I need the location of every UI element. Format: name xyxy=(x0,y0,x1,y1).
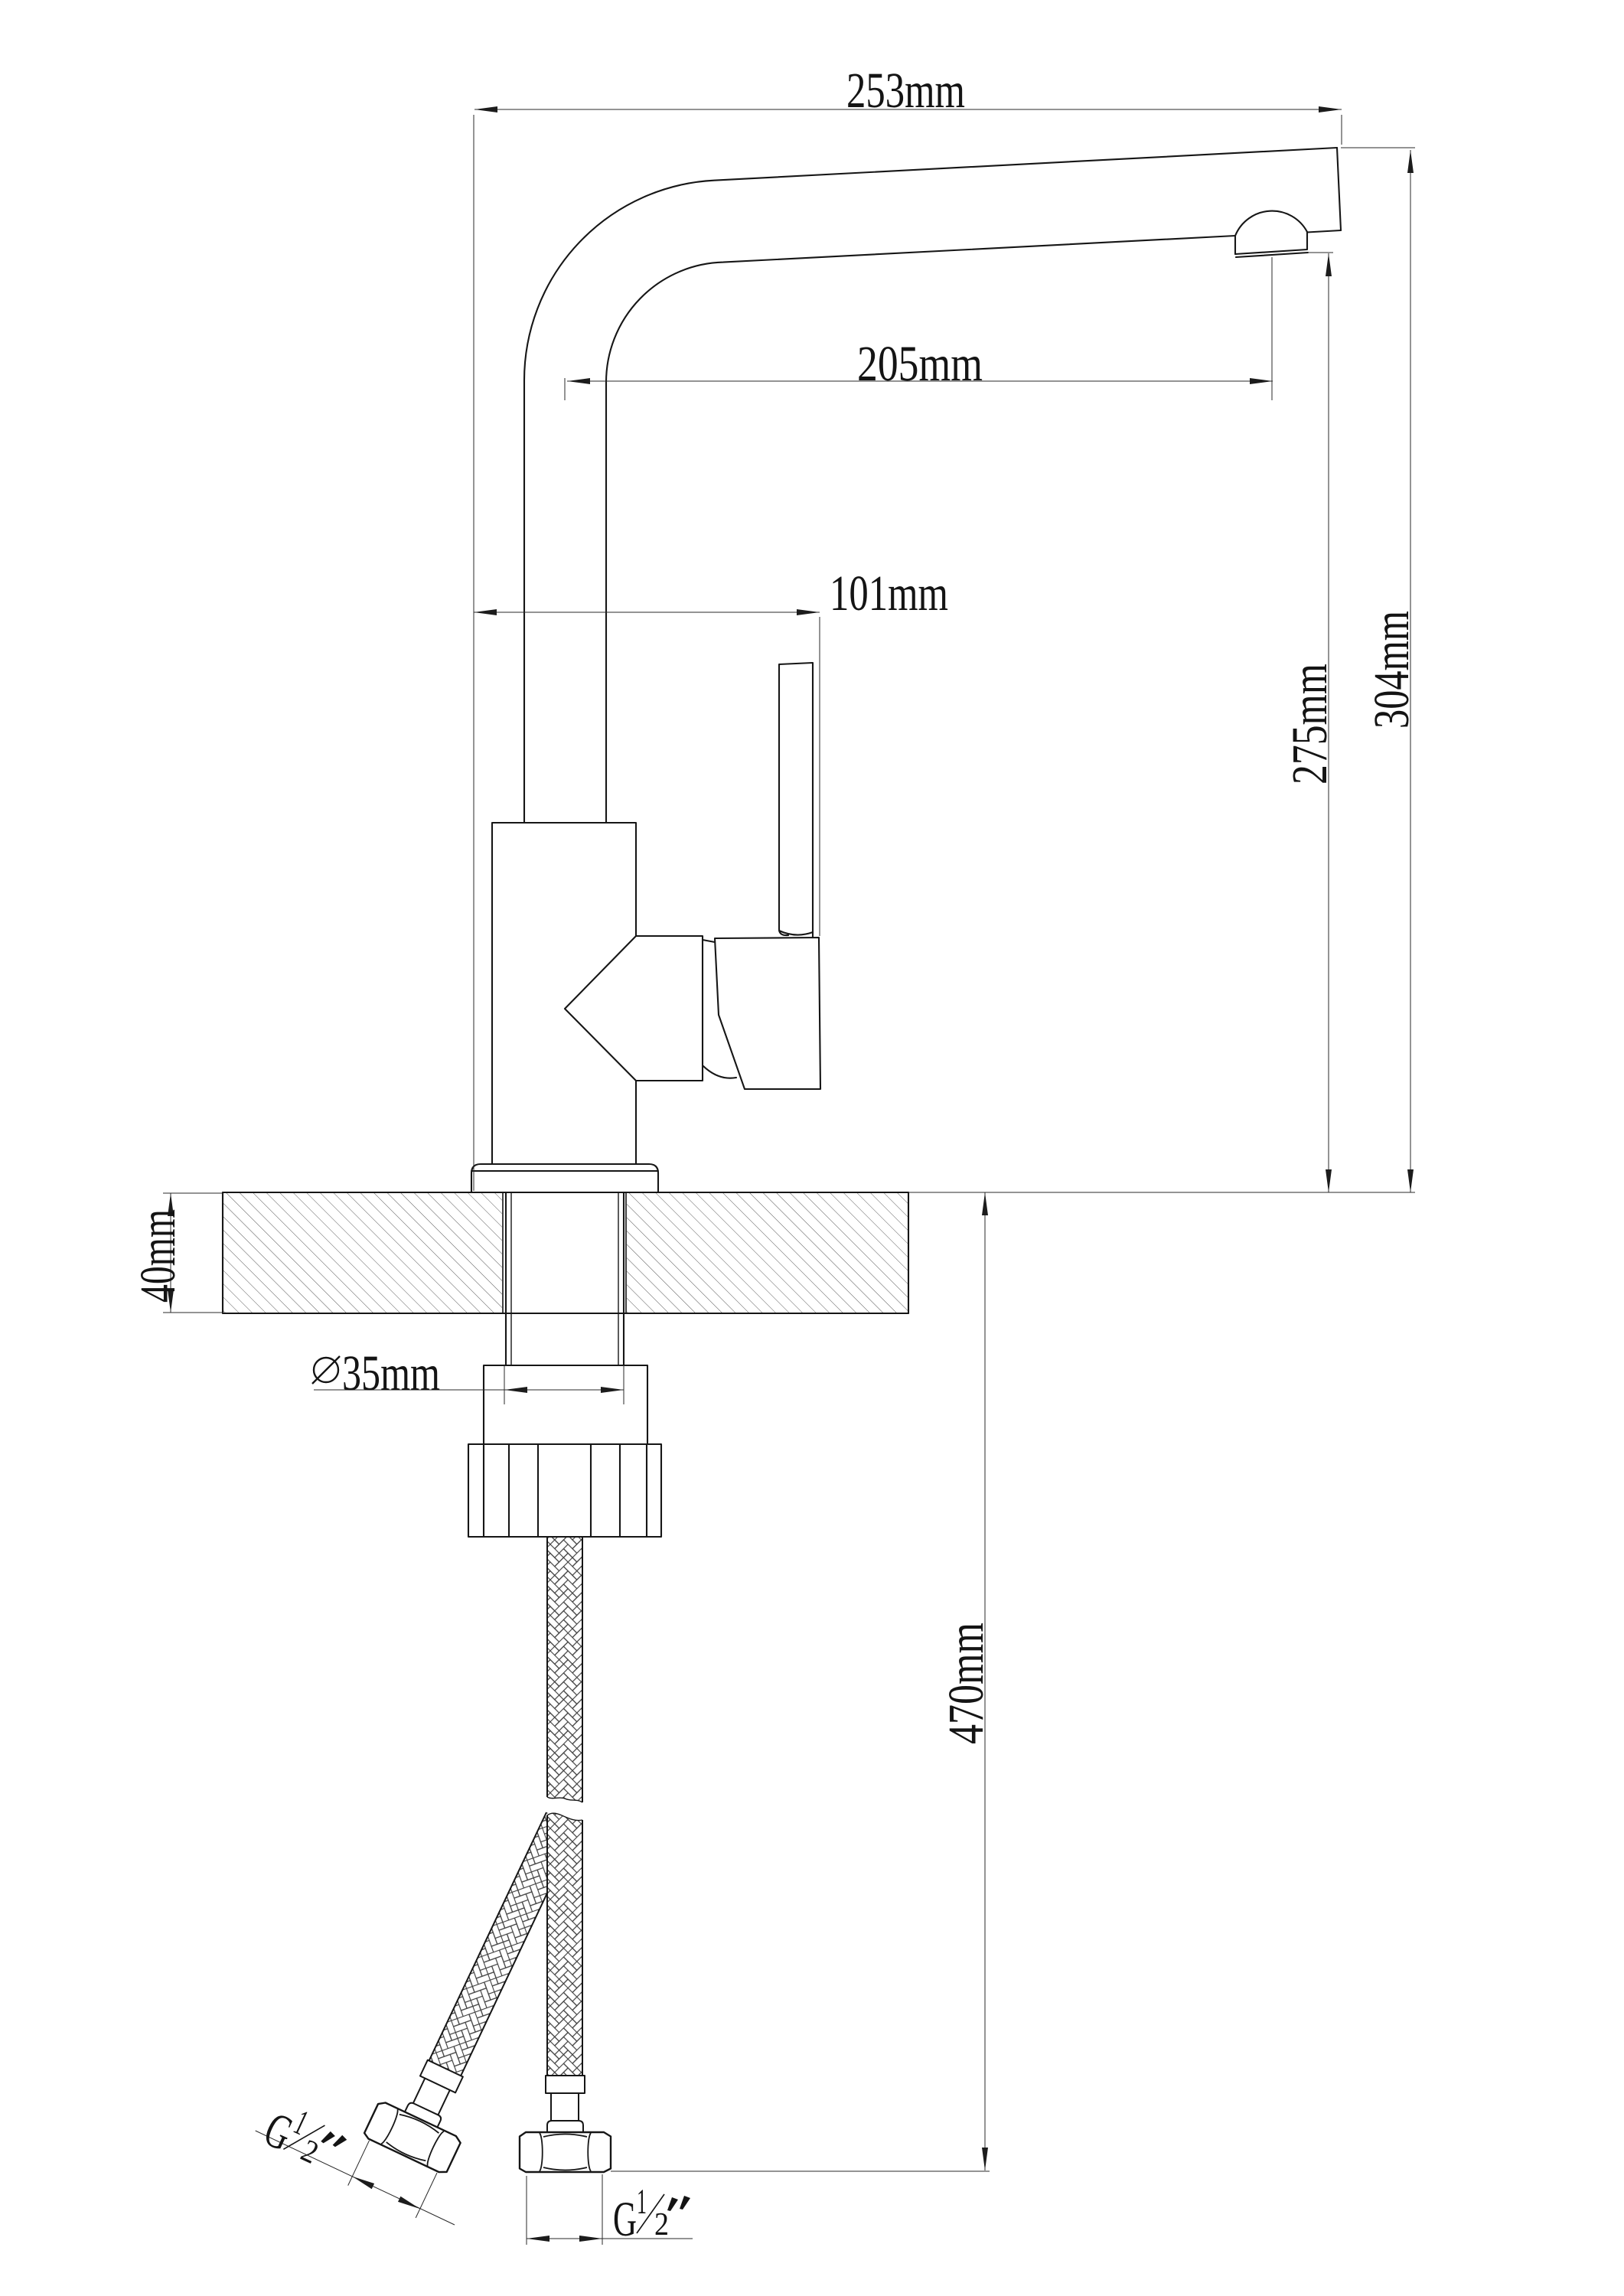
svg-text:275mm: 275mm xyxy=(1282,664,1338,784)
svg-text:253mm: 253mm xyxy=(846,63,965,119)
svg-text:205mm: 205mm xyxy=(857,336,983,392)
svg-text:101mm: 101mm xyxy=(830,566,948,621)
svg-text:470mm: 470mm xyxy=(938,1623,994,1744)
svg-text:1: 1 xyxy=(637,2182,647,2222)
svg-text:G: G xyxy=(613,2192,637,2247)
svg-text:2: 2 xyxy=(654,2207,669,2242)
svg-text:304mm: 304mm xyxy=(1364,611,1420,729)
svg-text:35mm: 35mm xyxy=(342,1345,440,1401)
svg-text:40mm: 40mm xyxy=(130,1209,186,1303)
